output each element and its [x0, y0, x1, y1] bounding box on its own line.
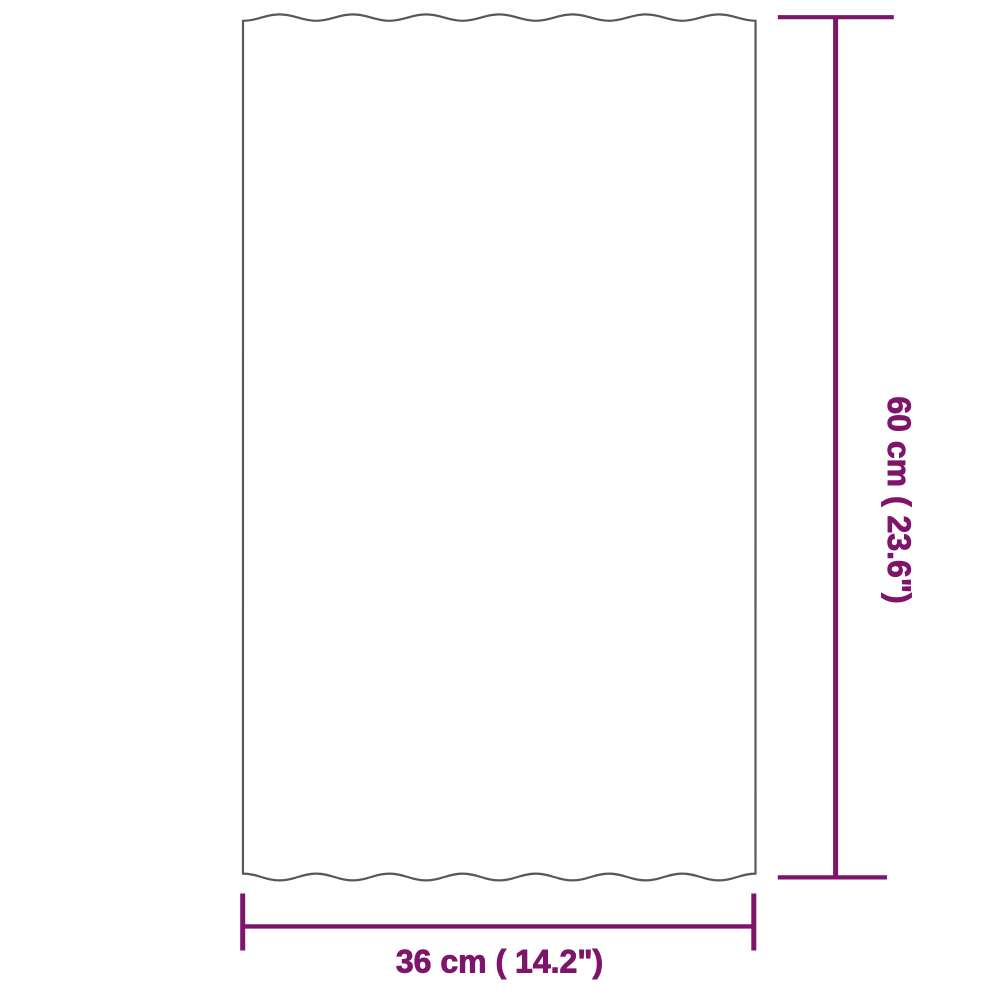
svg-text:36 cm ( 14.2"): 36 cm ( 14.2")	[396, 944, 603, 980]
svg-text:60 cm ( 23.6"): 60 cm ( 23.6")	[881, 396, 917, 603]
